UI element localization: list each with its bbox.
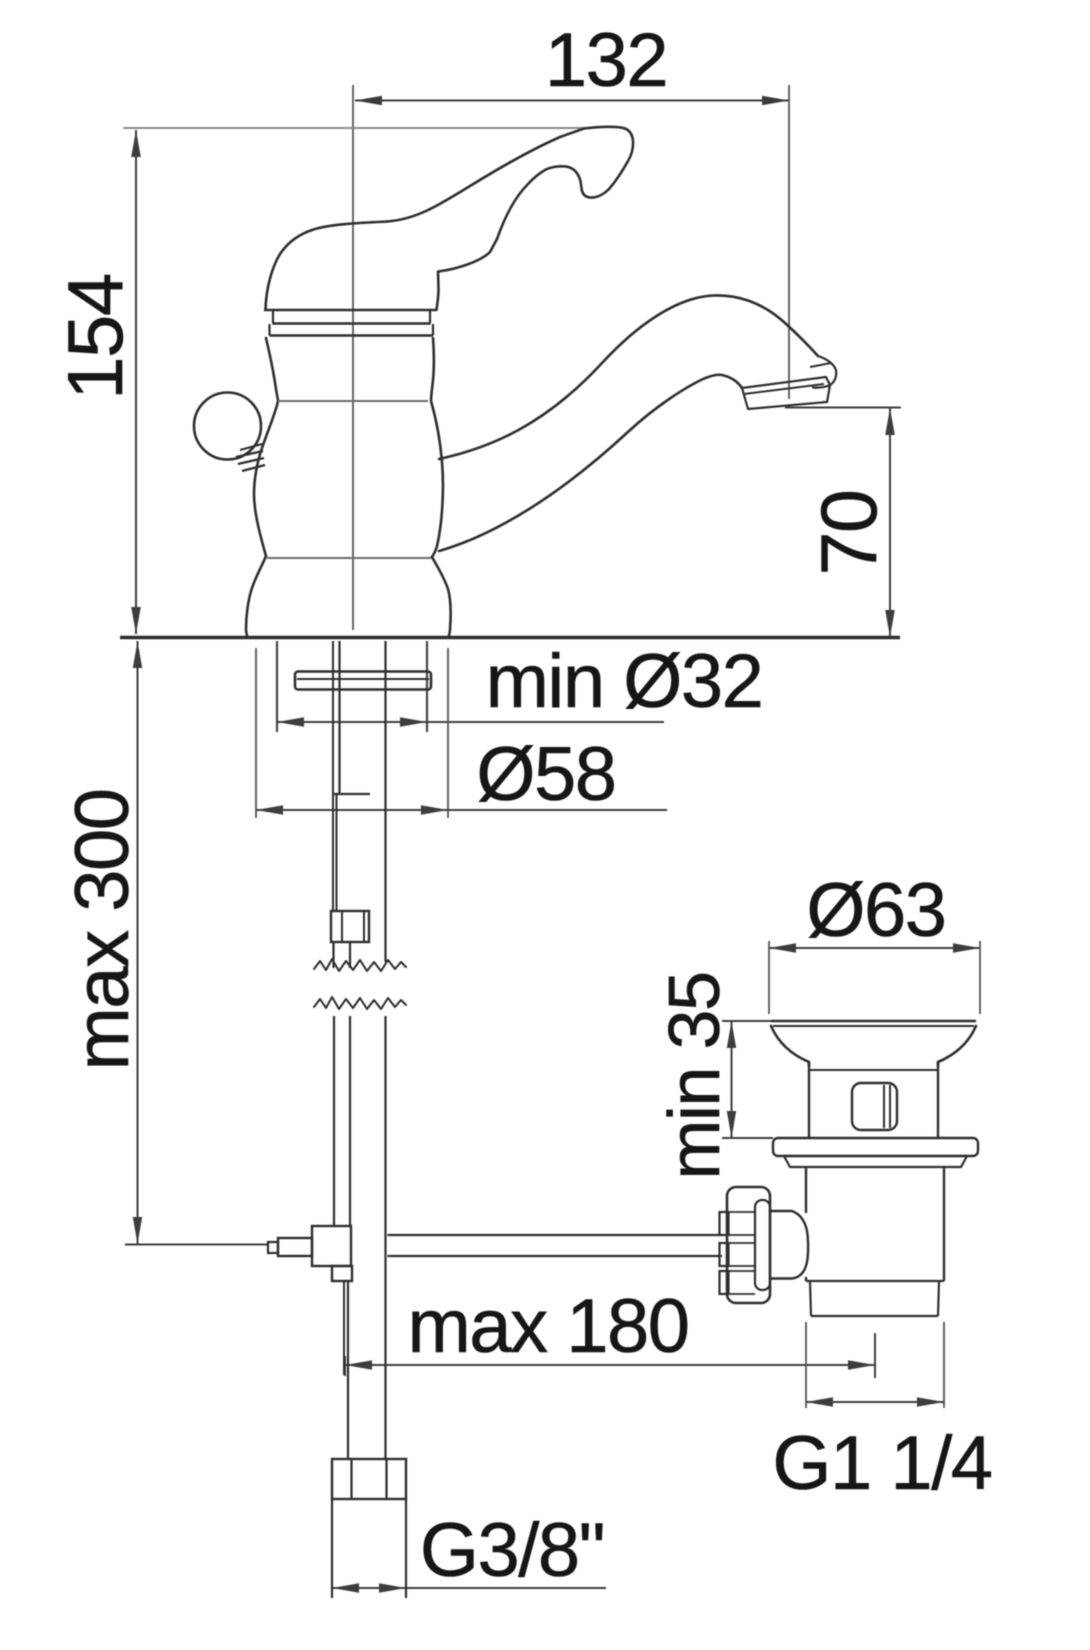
svg-text:min Ø32: min Ø32 bbox=[486, 639, 763, 724]
svg-text:max 300: max 300 bbox=[60, 790, 145, 1071]
svg-text:132: 132 bbox=[545, 18, 667, 103]
svg-text:G1 1/4: G1 1/4 bbox=[772, 1421, 991, 1506]
svg-text:Ø58: Ø58 bbox=[476, 732, 615, 817]
svg-text:154: 154 bbox=[51, 274, 139, 400]
svg-text:Ø63: Ø63 bbox=[806, 868, 945, 953]
svg-text:G3/8": G3/8" bbox=[420, 1508, 604, 1593]
svg-text:70: 70 bbox=[804, 491, 893, 576]
svg-text:min 35: min 35 bbox=[655, 972, 735, 1179]
svg-text:max 180: max 180 bbox=[408, 1284, 689, 1369]
